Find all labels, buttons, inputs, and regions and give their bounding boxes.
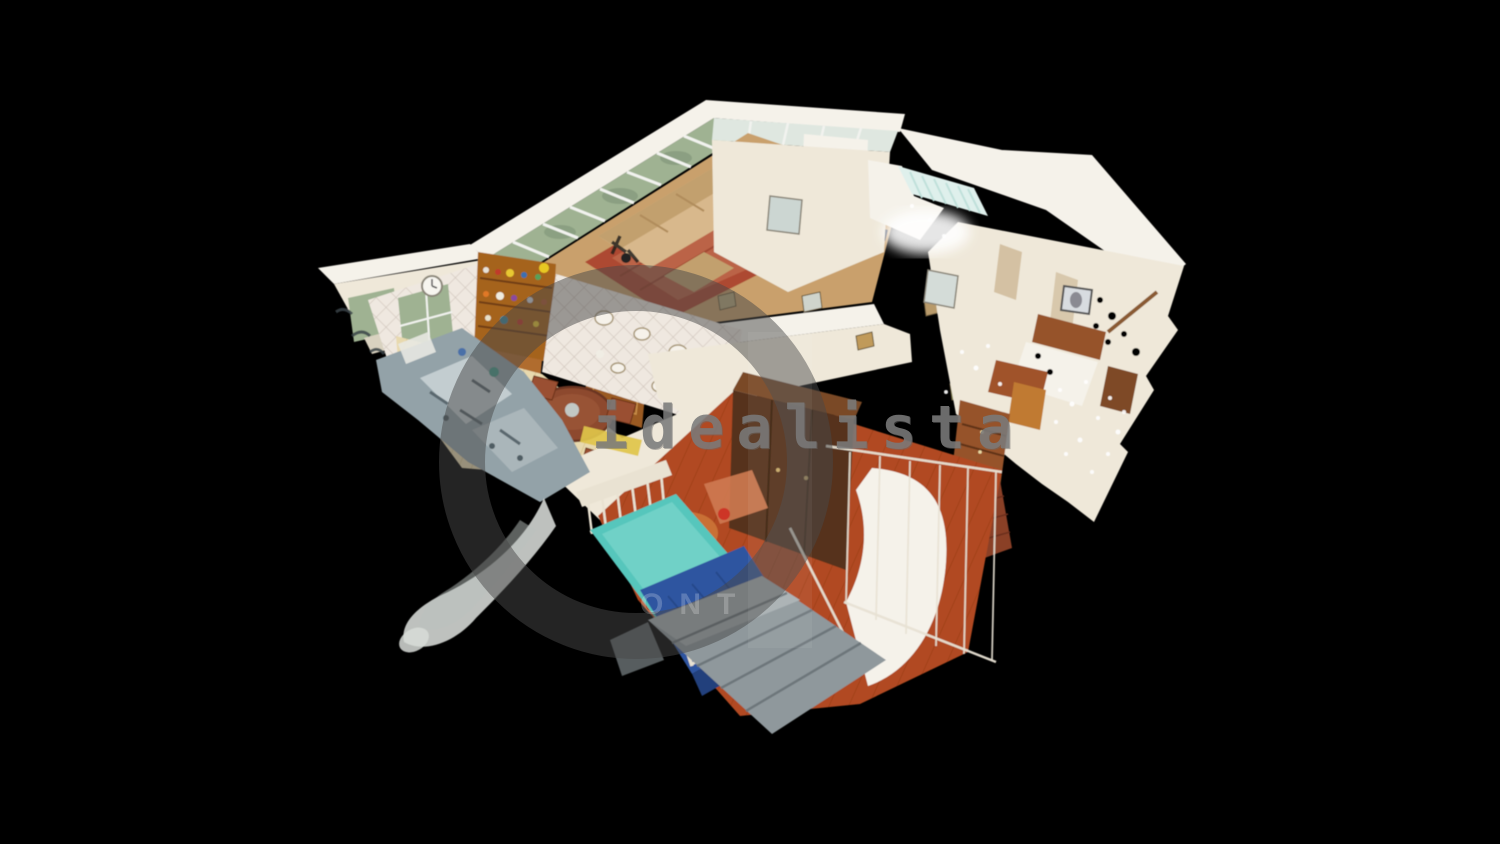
idealista-watermark: idealista xyxy=(592,398,1025,458)
red-cloth xyxy=(718,508,730,520)
white-jug xyxy=(596,350,604,358)
ghost-watermark-letters: ONT xyxy=(640,590,751,620)
blue-item xyxy=(458,348,466,356)
portrait-frame xyxy=(1061,286,1092,314)
wall-clock xyxy=(422,276,442,296)
mirror xyxy=(767,196,802,234)
mirror-2 xyxy=(924,270,958,308)
light-glow xyxy=(882,210,970,254)
ghost-bar xyxy=(748,332,812,648)
dollhouse-3d-scan-view[interactable]: idealista ONT xyxy=(0,0,1500,844)
